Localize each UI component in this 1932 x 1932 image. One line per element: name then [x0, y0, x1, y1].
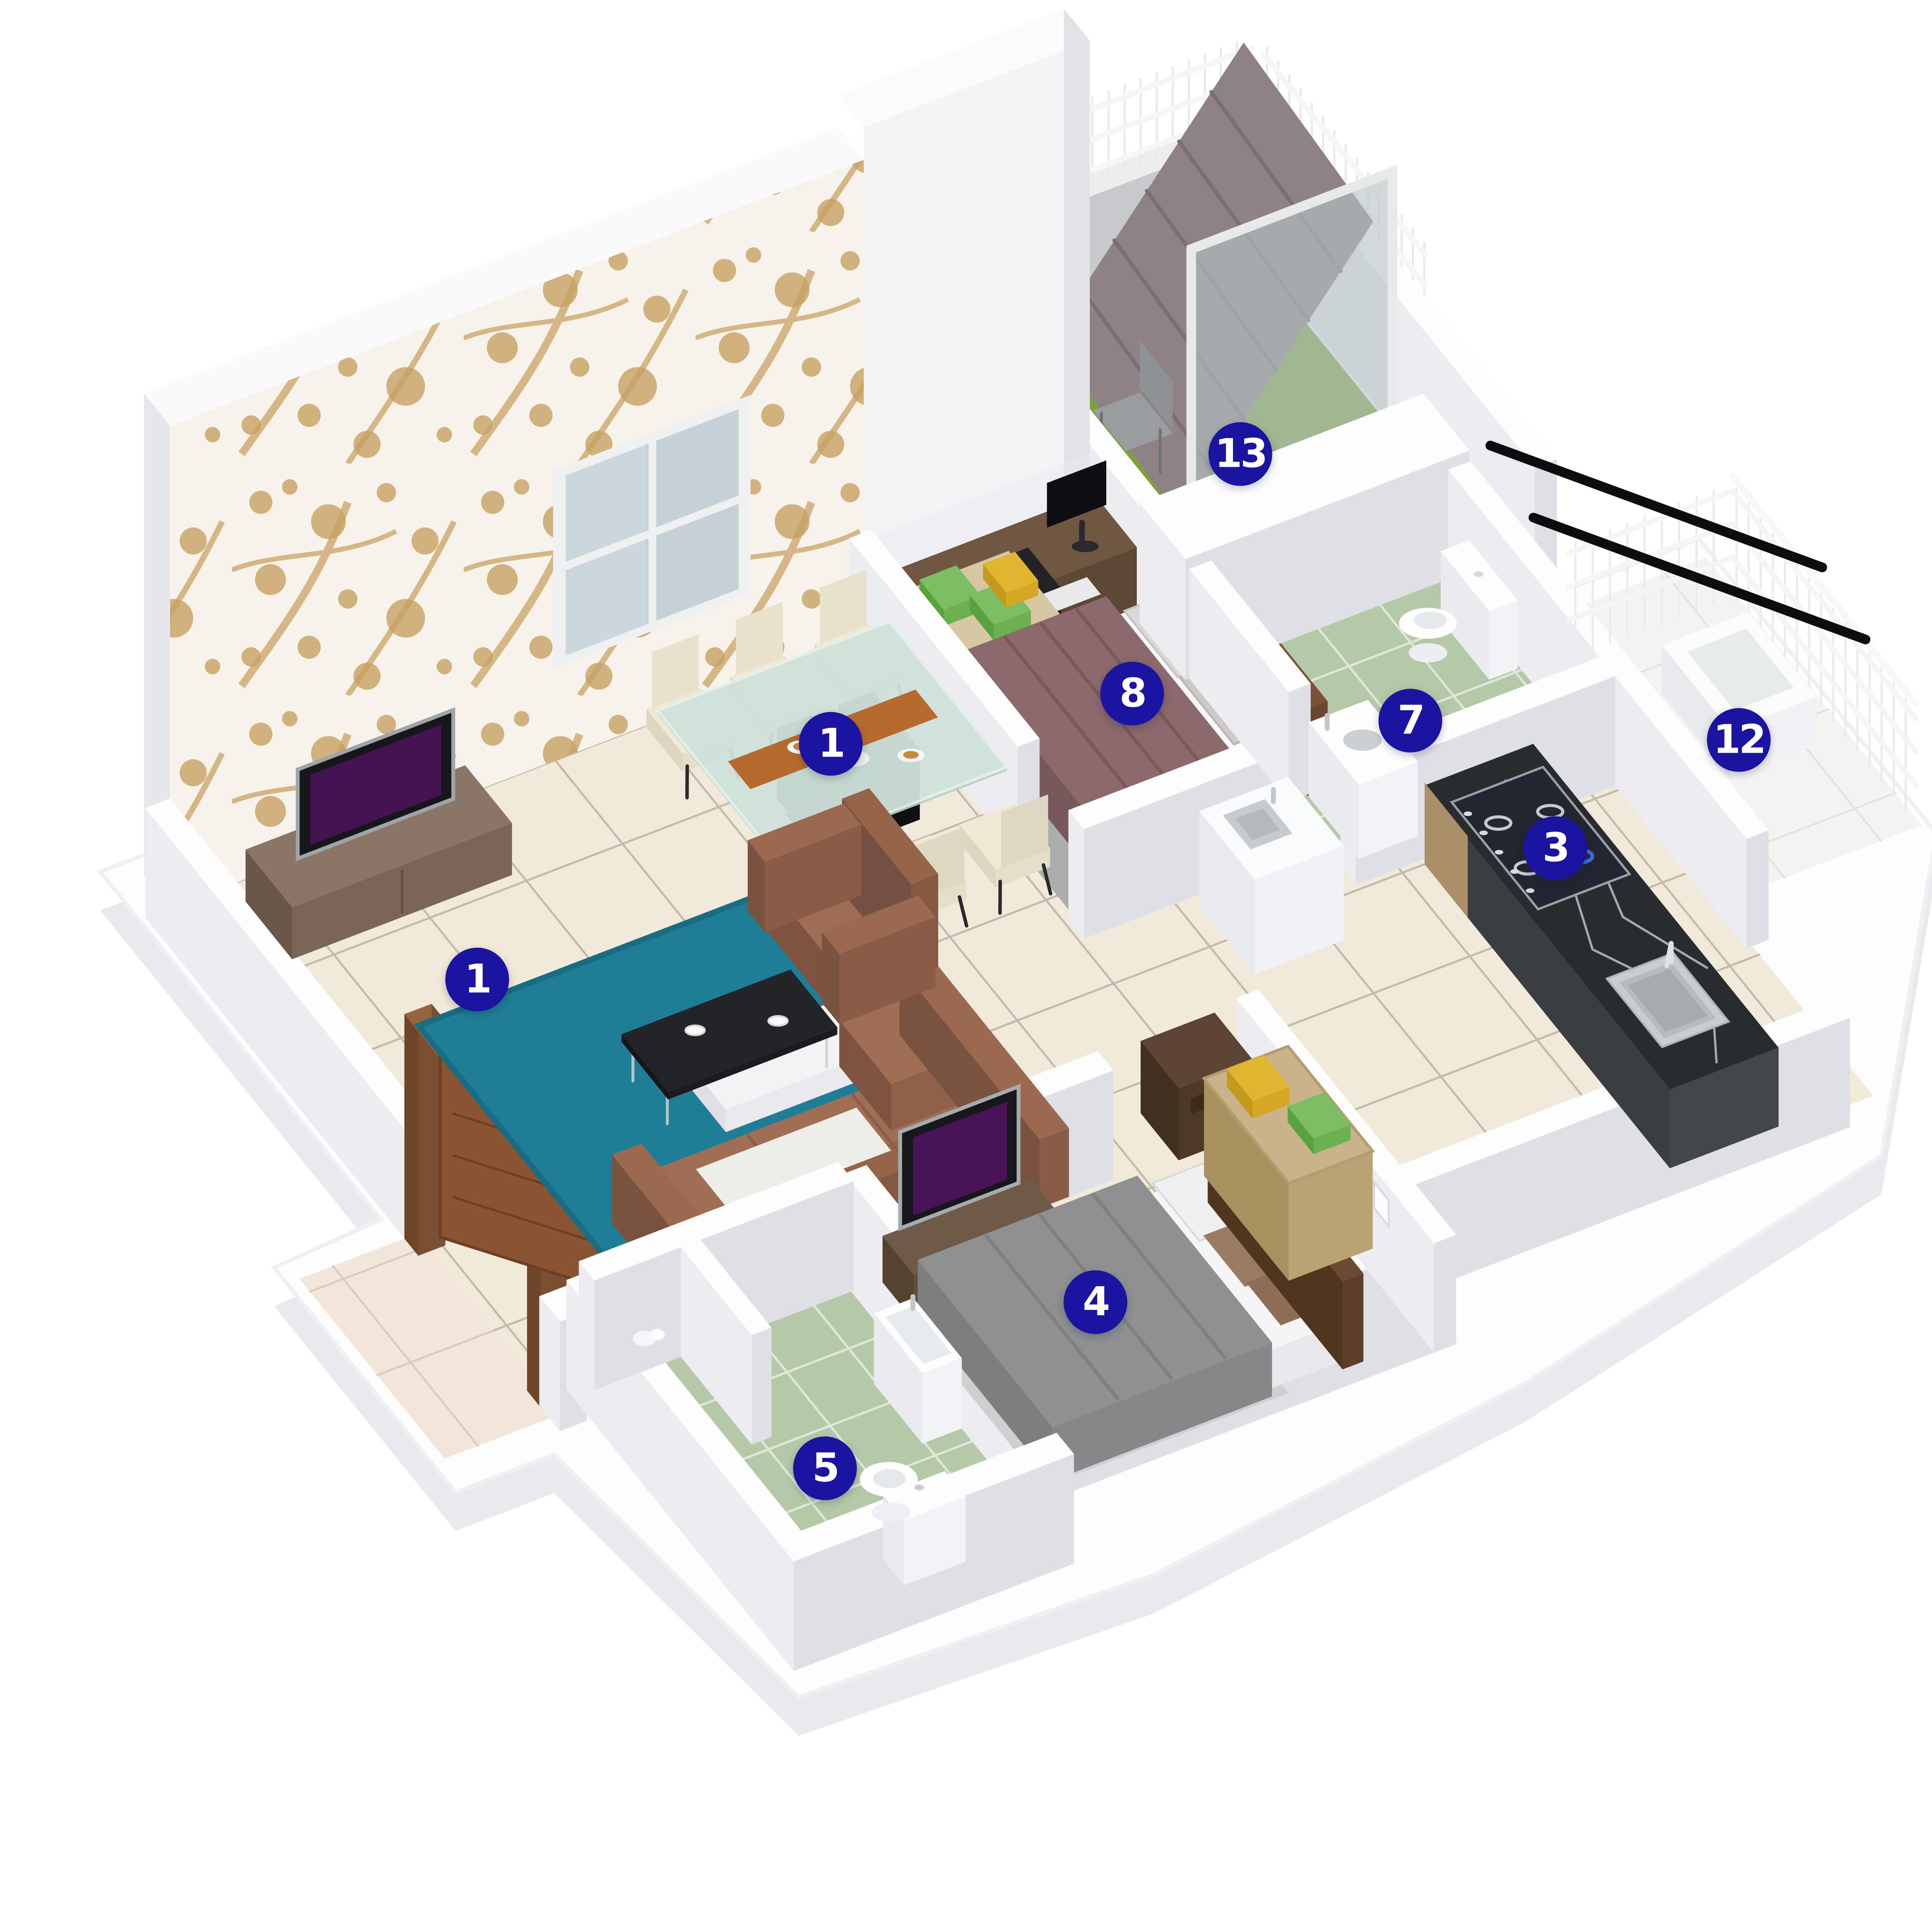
room-marker-dining-area[interactable]: 1 — [799, 712, 863, 776]
room-marker-bedroom-2[interactable]: 4 — [1064, 1270, 1128, 1334]
room-marker-kitchen[interactable]: 3 — [1524, 816, 1587, 880]
marker-number: 8 — [1119, 674, 1145, 714]
marker-number: 4 — [1083, 1282, 1108, 1322]
room-marker-bedroom-1[interactable]: 8 — [1100, 662, 1164, 726]
floorplan-canvas: 11345781213 — [0, 0, 1932, 1932]
marker-number: 1 — [464, 960, 490, 1000]
marker-number: 12 — [1713, 720, 1764, 760]
marker-number: 1 — [818, 724, 844, 764]
marker-number: 13 — [1215, 434, 1266, 474]
floorplan-render — [0, 0, 1932, 1932]
room-marker-bathroom-2[interactable]: 5 — [793, 1437, 857, 1500]
room-marker-utility[interactable]: 12 — [1707, 708, 1771, 772]
marker-number: 7 — [1398, 701, 1423, 741]
marker-number: 3 — [1543, 828, 1568, 868]
room-marker-living-room[interactable]: 1 — [446, 948, 509, 1012]
room-marker-bathroom-1[interactable]: 7 — [1379, 689, 1442, 753]
marker-number: 5 — [812, 1449, 838, 1488]
room-marker-balcony[interactable]: 13 — [1209, 422, 1272, 486]
